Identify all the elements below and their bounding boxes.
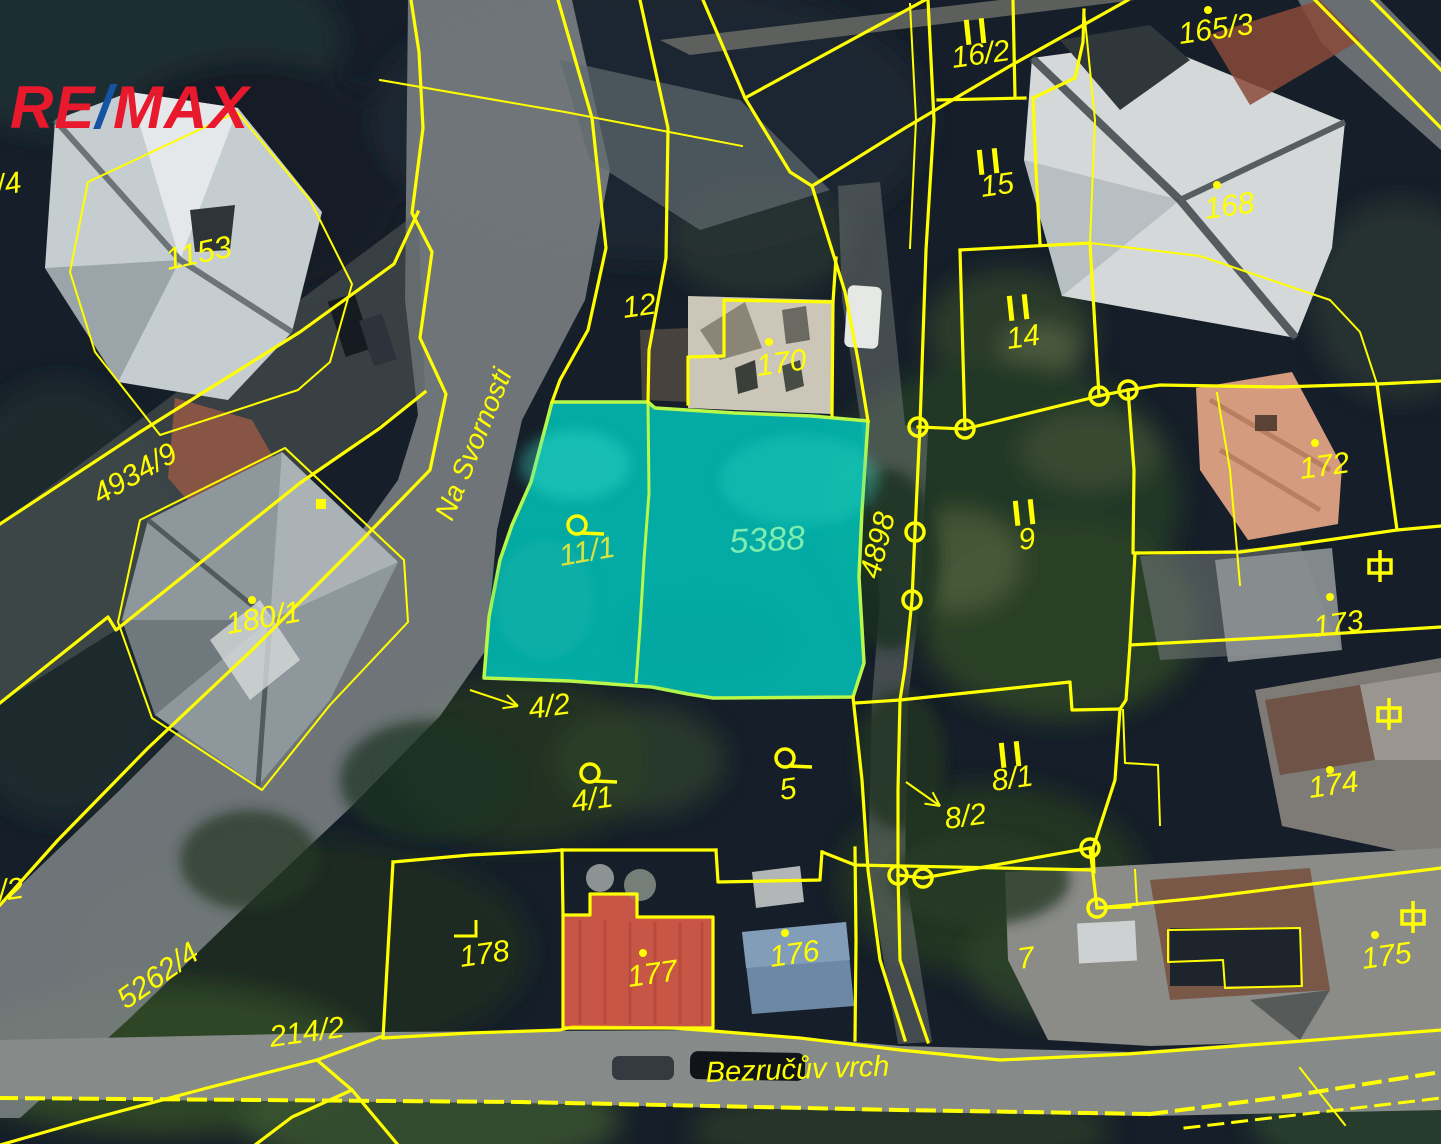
parcel-center-dot <box>1213 181 1221 189</box>
parcel-label-170: 170 <box>754 343 808 383</box>
remax-logo: RE/MAX <box>10 78 249 138</box>
parcel-label-8-1: 8/1 <box>989 759 1035 797</box>
remax-logo-re: RE <box>10 78 95 138</box>
parcel-label-4-1: 4/1 <box>569 780 615 818</box>
parcel-center-dot <box>639 949 647 957</box>
parcel-label-174: 174 <box>1306 765 1360 805</box>
parcel-label-5388: 5388 <box>728 519 806 561</box>
square-dot <box>316 499 326 509</box>
parcel-center-dot <box>1371 931 1379 939</box>
parcel-label-173: 173 <box>1311 604 1365 644</box>
parcel-label-15: 15 <box>978 167 1016 204</box>
parcel-label-172: 172 <box>1297 446 1351 486</box>
remax-logo-max: MAX <box>113 78 249 138</box>
parcel-label-168: 168 <box>1202 186 1256 226</box>
cadastral-map-screenshot: /4115316/2165/31516812170144934/911/1538… <box>0 0 1441 1144</box>
street-label-Bezru-v-vrch: Bezručův vrch <box>705 1051 890 1089</box>
parcel-label-12: 12 <box>620 288 658 325</box>
cadastral-map: /4115316/2165/31516812170144934/911/1538… <box>0 0 1441 1144</box>
parcel-center-dot <box>781 929 789 937</box>
remax-logo-slash: / <box>95 78 113 138</box>
parcel-label-14: 14 <box>1004 319 1042 356</box>
parcel-label-4-2: 4/2 <box>526 687 572 726</box>
parcel-label-175: 175 <box>1359 936 1413 976</box>
parcel-center-dot <box>1326 593 1334 601</box>
parcel-label-8-2: 8/2 <box>942 797 988 836</box>
parcel-center-dot <box>1311 439 1319 447</box>
highlight-parcel <box>484 402 880 698</box>
parcel-label-178: 178 <box>457 934 511 974</box>
parcel-center-dot <box>765 338 773 346</box>
parcel-label-176: 176 <box>767 934 821 974</box>
